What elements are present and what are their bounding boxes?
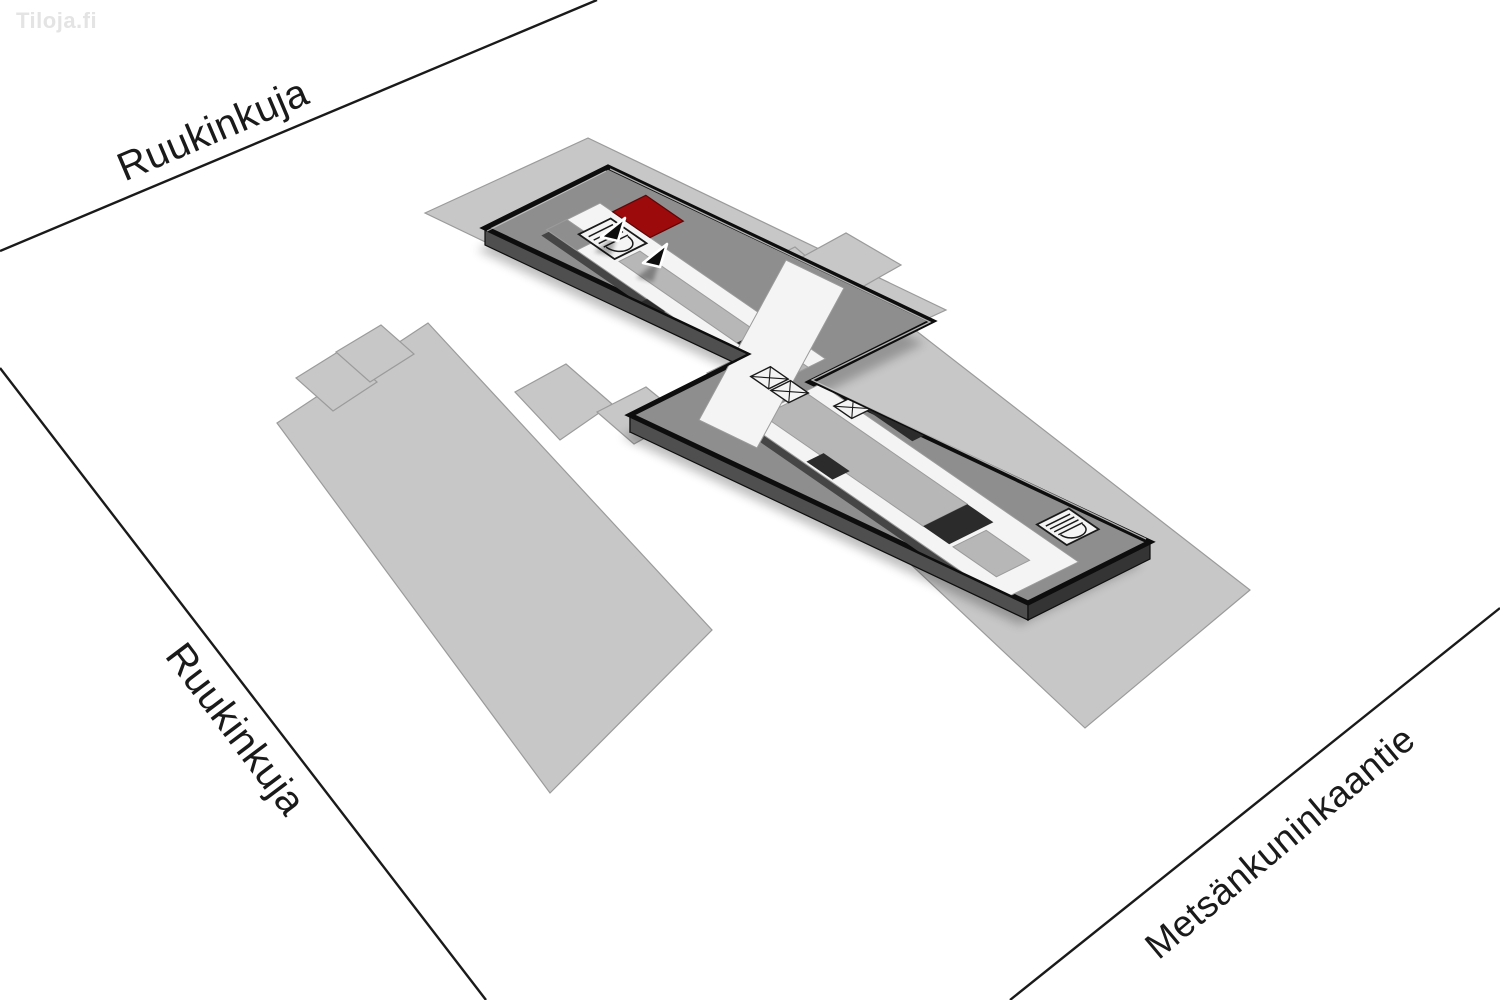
street-label-ruukinkuja-top: Ruukinkuja: [111, 70, 315, 190]
street-label-ruukinkuja-left: Ruukinkuja: [157, 635, 314, 824]
building-scene: [277, 138, 1250, 793]
site-plan-canvas: Ruukinkuja Ruukinkuja Metsänkuninkaantie…: [0, 0, 1500, 1000]
ground-plot-connector: [515, 364, 612, 440]
tiloja-watermark: Tiloja.fi: [16, 8, 97, 33]
street-label-metsankuninkaantie: Metsänkuninkaantie: [1137, 718, 1422, 967]
